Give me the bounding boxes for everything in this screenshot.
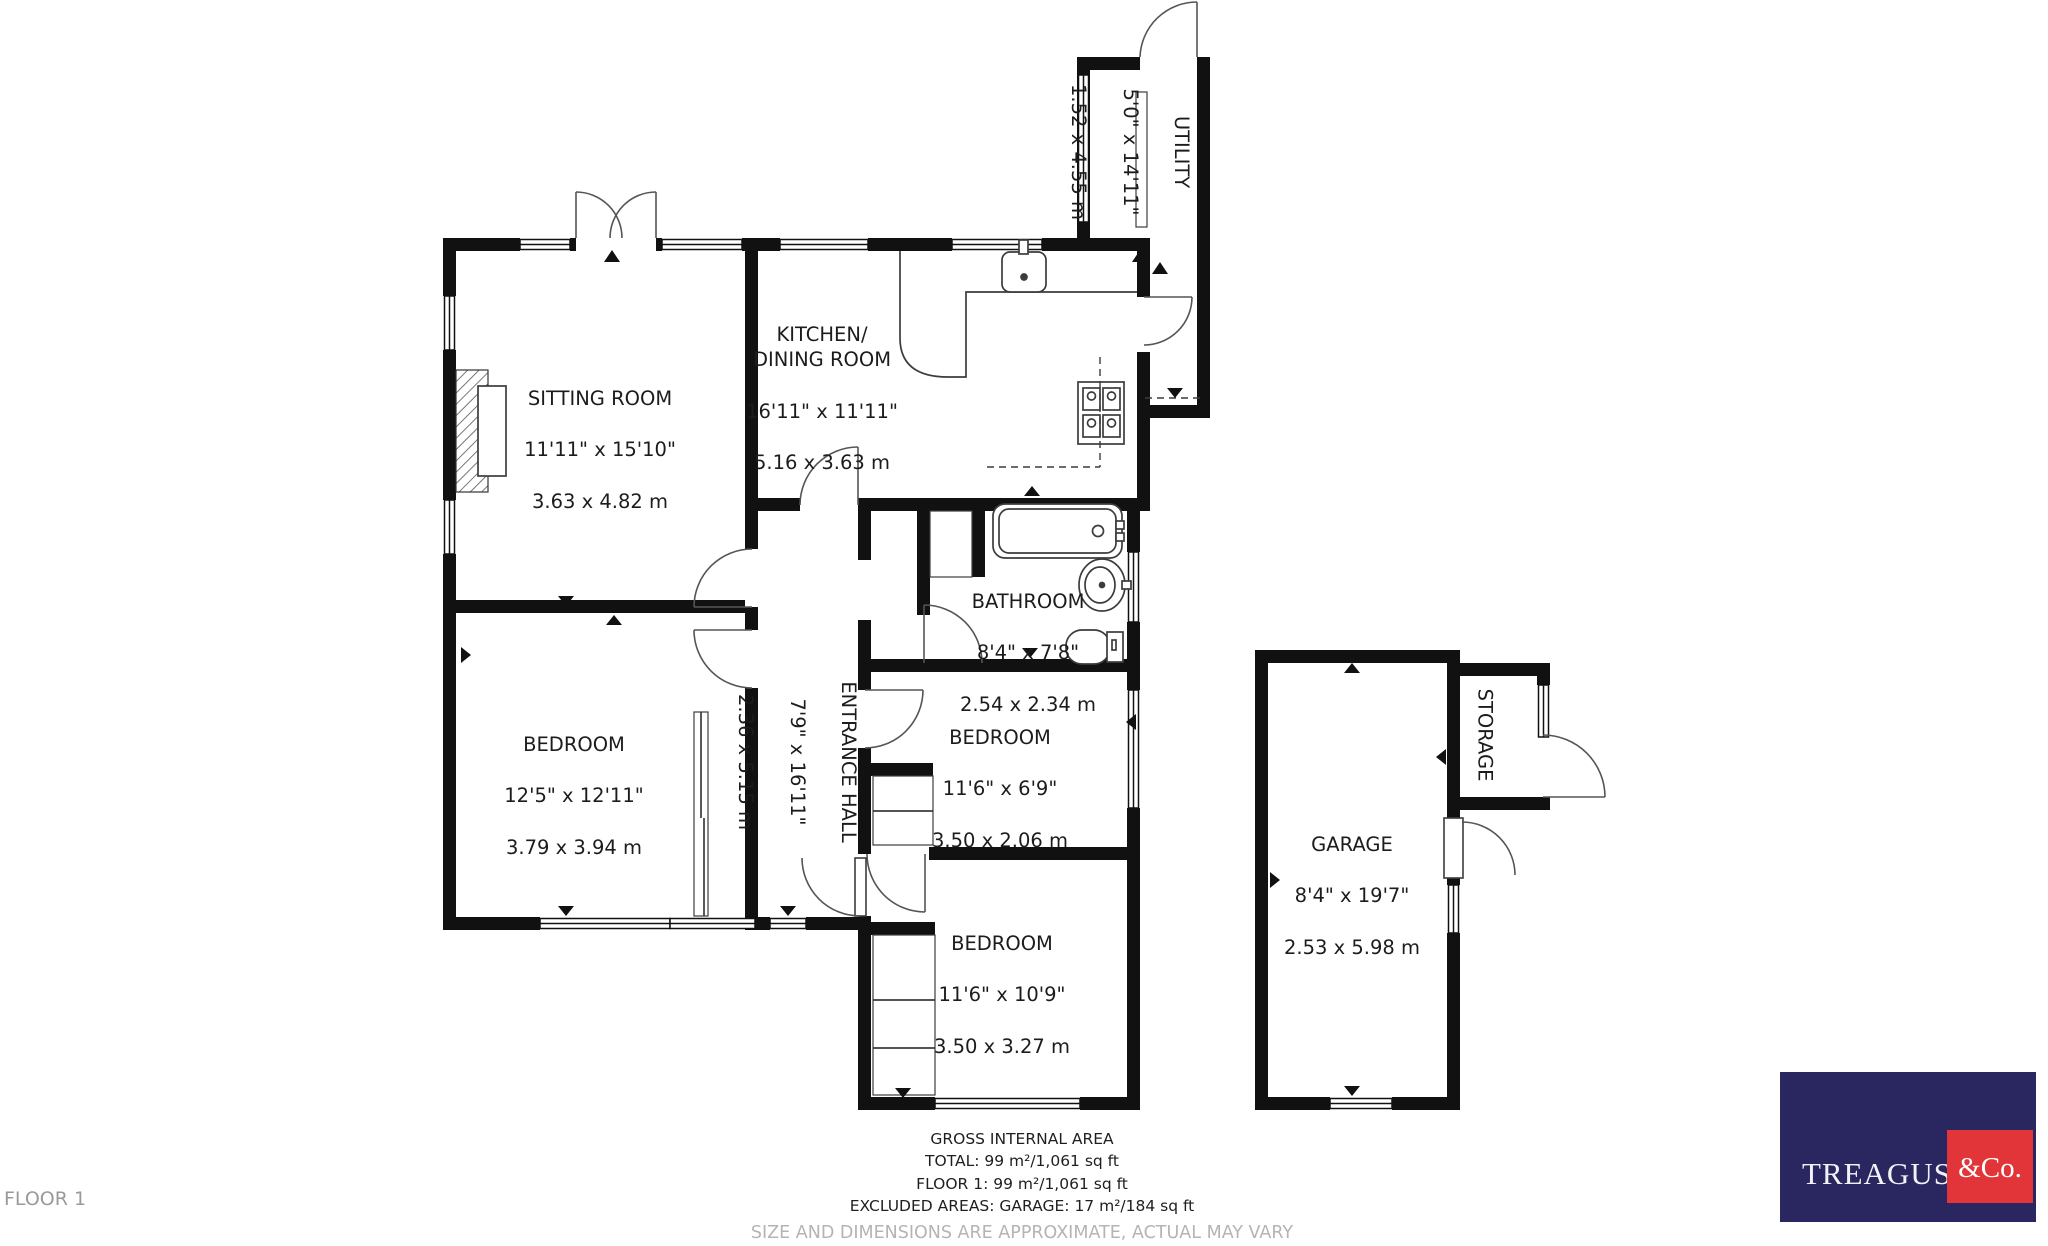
- room-dims-metric: 3.79 x 3.94 m: [506, 835, 642, 858]
- room-dims-metric: 5.16 x 3.63 m: [754, 451, 890, 474]
- gia-total: TOTAL: 99 m²/1,061 sq ft: [751, 1150, 1293, 1172]
- treagust-logo: TREAGUST &Co.: [1780, 1072, 2036, 1222]
- room-label-sitting-room: SITTING ROOM 11'11" x 15'10" 3.63 x 4.82…: [524, 360, 676, 514]
- room-name: BEDROOM: [949, 726, 1051, 749]
- room-dims-metric: 3.63 x 4.82 m: [532, 489, 668, 512]
- room-label-bedroom-2: BEDROOM 11'6" x 6'9" 3.50 x 2.06 m: [932, 699, 1068, 853]
- logo-suffix-text: &Co.: [1958, 1152, 2022, 1185]
- room-name: STORAGE: [1474, 689, 1497, 782]
- room-dims-imperial: 11'6" x 6'9": [943, 777, 1058, 800]
- room-name: KITCHEN/ DINING ROOM: [753, 323, 891, 372]
- room-dims-metric: 1.52 x 4.55 m: [1068, 84, 1091, 220]
- room-dims-imperial: 12'5" x 12'11": [504, 784, 643, 807]
- room-label-bedroom-3: BEDROOM 11'6" x 10'9" 3.50 x 3.27 m: [934, 905, 1070, 1059]
- room-dims-metric: 3.50 x 2.06 m: [932, 828, 1068, 851]
- room-dims-imperial: 11'6" x 10'9": [938, 983, 1065, 1006]
- floor-label: FLOOR 1: [4, 1188, 86, 1210]
- room-dims-imperial: 11'11" x 15'10": [524, 438, 676, 461]
- size-disclaimer: SIZE AND DIMENSIONS ARE APPROXIMATE, ACT…: [751, 1221, 1293, 1246]
- room-label-kitchen-dining: KITCHEN/ DINING ROOM 16'11" x 11'11" 5.1…: [746, 296, 898, 476]
- room-dims-imperial: 7'9" x 16'11": [786, 698, 809, 825]
- logo-red-square: &Co.: [1947, 1130, 2033, 1203]
- room-dims-imperial: 8'4" x 19'7": [1295, 884, 1410, 907]
- room-label-bathroom: BATHROOM 8'4" x 7'8" 2.54 x 2.34 m: [960, 563, 1096, 717]
- bath-tub: [993, 504, 1124, 558]
- room-label-garage: GARAGE 8'4" x 19'7" 2.53 x 5.98 m: [1284, 806, 1420, 960]
- room-dims-metric: 3.50 x 3.27 m: [934, 1034, 1070, 1057]
- gia-floor: FLOOR 1: 99 m²/1,061 sq ft: [751, 1173, 1293, 1195]
- room-name: BATHROOM: [972, 590, 1085, 613]
- wardrobe: [694, 712, 708, 916]
- room-name: SITTING ROOM: [528, 387, 672, 410]
- room-name: ENTRANCE HALL: [837, 681, 860, 842]
- room-label-utility: UTILITY 5'0" x 14'11" 1.52 x 4.55 m: [1066, 84, 1220, 220]
- wardrobe: [873, 935, 935, 1095]
- room-label-bedroom-1: BEDROOM 12'5" x 12'11" 3.79 x 3.94 m: [504, 706, 643, 860]
- room-name: UTILITY: [1170, 116, 1193, 188]
- room-name: GARAGE: [1311, 833, 1393, 856]
- room-dims-imperial: 5'0" x 14'11": [1119, 88, 1142, 215]
- fireplace: [456, 370, 506, 492]
- room-dims-imperial: 8'4" x 7'8": [977, 641, 1079, 664]
- room-label-storage: STORAGE: [1472, 689, 1523, 782]
- room-name: BEDROOM: [523, 733, 625, 756]
- room-dims-metric: 2.53 x 5.98 m: [1284, 935, 1420, 958]
- gross-internal-area-note: GROSS INTERNAL AREA TOTAL: 99 m²/1,061 s…: [751, 1128, 1293, 1246]
- room-name: BEDROOM: [951, 932, 1053, 955]
- hob: [1078, 382, 1124, 444]
- room-label-entrance-hall: ENTRANCE HALL 7'9" x 16'11" 2.36 x 5.15 …: [733, 681, 887, 842]
- floorplan-canvas: SITTING ROOM 11'11" x 15'10" 3.63 x 4.82…: [0, 0, 2048, 1229]
- gia-heading: GROSS INTERNAL AREA: [751, 1128, 1293, 1150]
- room-dims-imperial: 16'11" x 11'11": [746, 400, 898, 423]
- room-dims-metric: 2.36 x 5.15 m: [735, 694, 758, 830]
- gia-excluded: EXCLUDED AREAS: GARAGE: 17 m²/184 sq ft: [751, 1195, 1293, 1217]
